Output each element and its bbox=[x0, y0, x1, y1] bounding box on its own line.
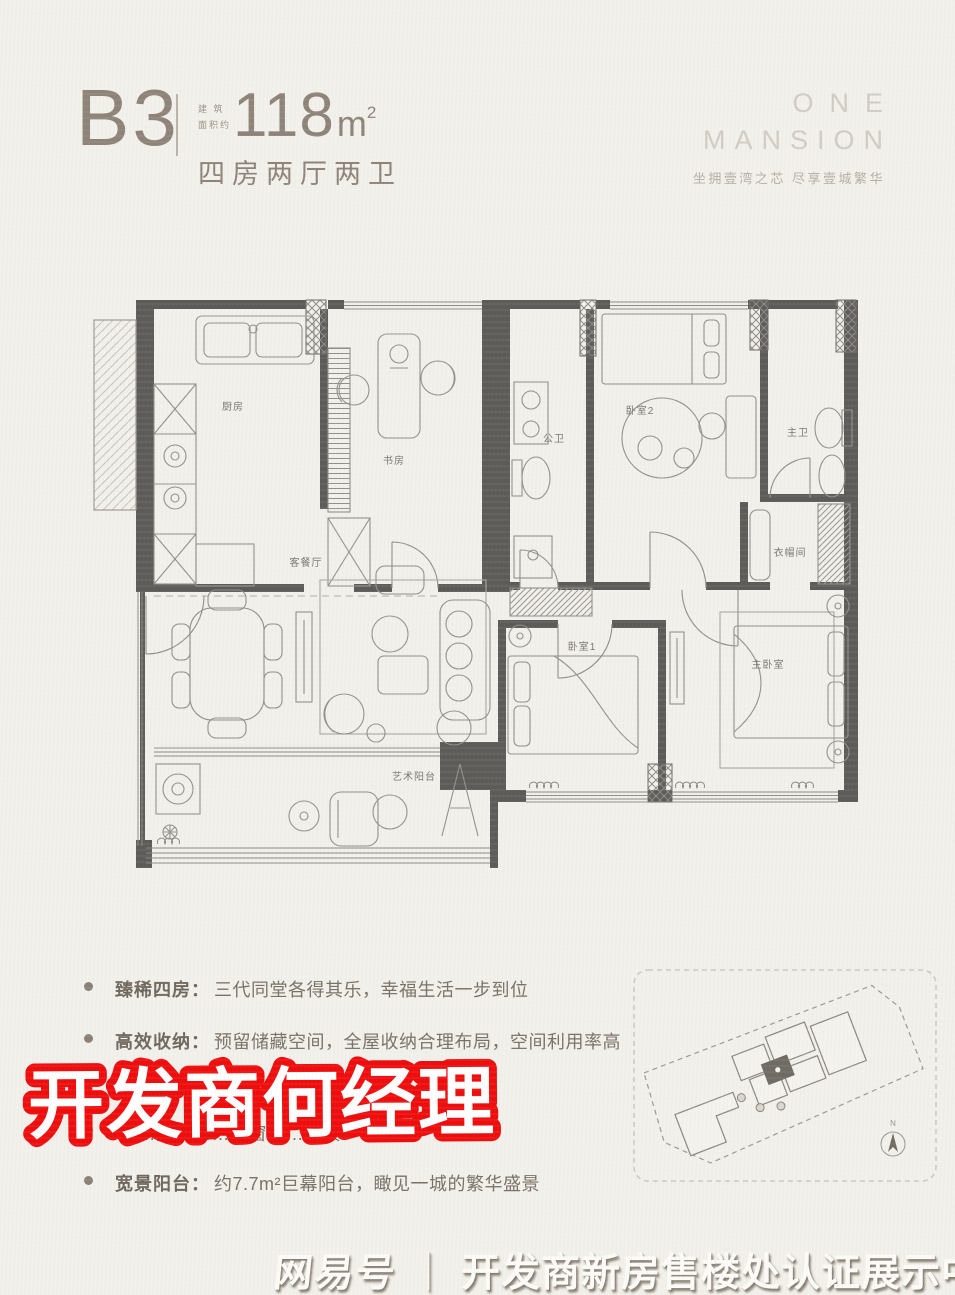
area-superscript: 2 bbox=[367, 103, 376, 122]
room-label-master-bedroom: 主卧室 bbox=[752, 658, 785, 671]
brand-logo: ONE MANSION 坐拥壹湾之芯 尽享壹城繁华 bbox=[693, 88, 883, 187]
area-value: 118 bbox=[233, 81, 335, 150]
room-label-bedroom2: 卧室2 bbox=[626, 404, 655, 417]
area-block: 建 筑 面积约 118m2 bbox=[198, 88, 376, 145]
header-divider bbox=[176, 94, 178, 156]
curtain-symbols bbox=[158, 782, 814, 844]
footer-text: 开发商新房售楼处认证展示中心 bbox=[461, 1252, 955, 1295]
area-annotation-line2: 面积约 bbox=[198, 118, 231, 131]
site-plan-drawing bbox=[638, 979, 927, 1176]
bullet-dot bbox=[84, 982, 93, 991]
equipment-platform bbox=[94, 320, 136, 510]
footer-watermark: 网易号｜开发商新房售楼处认证展示中心 bbox=[274, 1242, 955, 1295]
room-label-bedroom1: 卧室1 bbox=[568, 640, 597, 653]
unit-code: B3 bbox=[76, 78, 180, 158]
feature-label: 臻稀四房： bbox=[115, 976, 210, 1002]
doors bbox=[146, 458, 810, 678]
room-label-living-dining: 客餐厅 bbox=[290, 556, 323, 569]
room-label-master-bath: 主卫 bbox=[787, 427, 809, 439]
brand-line-two: MANSION bbox=[693, 125, 892, 156]
bullet-dot bbox=[84, 1034, 93, 1043]
brand-tagline: 坐拥壹湾之芯 尽享壹城繁华 bbox=[693, 168, 885, 187]
room-label-art-balcony: 艺术阳台 bbox=[392, 770, 436, 783]
layout-description: 四房两厅两卫 bbox=[198, 152, 402, 191]
feature-item-4: 宽景阳台： 约7.7m²巨幕阳台，瞰见一城的繁华盛景 bbox=[84, 1170, 540, 1196]
feature-text: 约7.7m²巨幕阳台，瞰见一城的繁华盛景 bbox=[214, 1170, 540, 1196]
room-label-kitchen: 厨房 bbox=[222, 400, 244, 413]
room-label-study: 书房 bbox=[383, 454, 405, 467]
footer-separator: ｜ bbox=[409, 1252, 449, 1295]
room-label-cloakroom: 衣帽间 bbox=[774, 546, 807, 559]
feature-item-1: 臻稀四房： 三代同堂各得其乐，幸福生活一步到位 bbox=[84, 976, 529, 1002]
north-arrow: N bbox=[881, 1119, 905, 1156]
area-annotation-line1: 建 筑 bbox=[198, 102, 231, 115]
brand-line-one: ONE bbox=[693, 88, 899, 119]
feature-label: 宽景阳台： bbox=[115, 1170, 210, 1196]
north-label: N bbox=[890, 1119, 896, 1128]
footer-brand: 网易号 bbox=[271, 1242, 400, 1295]
area-annotation: 建 筑 面积约 bbox=[198, 102, 231, 131]
room-label-guest-bath: 公卫 bbox=[543, 434, 565, 445]
poster-page: B3 建 筑 面积约 118m2 四房两厅两卫 ONE MANSION 坐拥壹湾… bbox=[0, 0, 955, 1295]
sticker-text: 开发商何经理 bbox=[28, 1060, 497, 1148]
floor-plan: 厨房 书房 公卫 卧室2 主卫 客餐厅 艺术阳台 卧室1 主卧室 衣帽间 bbox=[92, 296, 882, 881]
sticker-overlay: 开发商何经理 bbox=[20, 1046, 507, 1155]
feature-text: 三代同堂各得其乐，幸福生活一步到位 bbox=[214, 976, 529, 1002]
area-unit: m bbox=[337, 103, 367, 144]
walls bbox=[136, 300, 858, 868]
site-plan: N bbox=[630, 966, 942, 1186]
bullet-dot bbox=[84, 1176, 93, 1185]
